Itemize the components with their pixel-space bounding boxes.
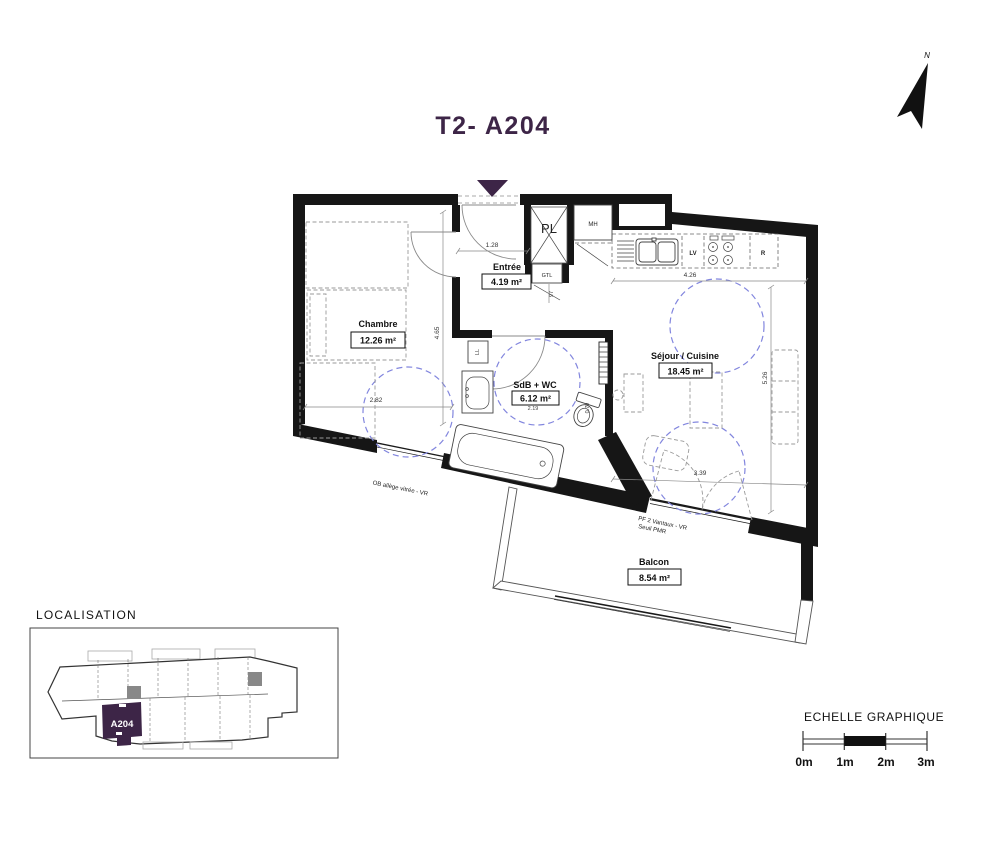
localisation-section: LOCALISATION A204	[30, 608, 338, 758]
washer-spot: LL	[468, 341, 488, 363]
scale-label-0m: 0m	[795, 755, 812, 769]
dim-chambre-depth: 4.65	[434, 326, 441, 339]
dim-sdb: 2.19	[528, 406, 539, 412]
pl-label: PL	[541, 221, 557, 236]
room-label-sdb: SdB + WC 6.12 m²	[512, 380, 559, 405]
localisation-heading: LOCALISATION	[36, 608, 137, 622]
scale-label-3m: 3m	[917, 755, 934, 769]
gtl-box: GTL	[532, 264, 562, 300]
area-chambre: 12.26 m²	[360, 336, 396, 346]
closet-pl: PL	[531, 207, 567, 263]
scale-bar-section: ECHELLE GRAPHIQUE 0m 1m 2m 3m	[795, 710, 944, 769]
area-sejour: 18.45 m²	[667, 367, 703, 377]
dim-wc: 0.79	[585, 403, 591, 414]
dim-kitchen-width: 4.26	[684, 272, 697, 279]
bathtub	[448, 424, 565, 489]
fridge-label: R	[761, 251, 766, 257]
kitchen-counter: LV R	[612, 234, 778, 268]
scale-heading: ECHELLE GRAPHIQUE	[804, 710, 944, 724]
bay-door-right-arc	[702, 471, 739, 510]
svg-text:Séjour / Cuisine: Séjour / Cuisine	[651, 351, 719, 361]
dim-bay-width: 3.39	[694, 470, 707, 477]
chambre-furniture	[300, 222, 408, 438]
armchair-outline	[641, 434, 690, 472]
sink-drainer	[617, 241, 634, 261]
washer-label: LL	[475, 349, 481, 355]
scale-label-2m: 2m	[877, 755, 894, 769]
page-title: T2- A204	[435, 112, 550, 140]
dim-entree-width: 1.28	[486, 242, 499, 249]
towel-radiator	[599, 342, 608, 384]
room-label-entree: Entrée 4.19 m²	[482, 262, 531, 289]
washbasin	[462, 371, 493, 413]
unit-a204-label: A204	[111, 719, 134, 730]
entrance-marker-triangle	[477, 180, 508, 197]
cooktop	[709, 236, 735, 265]
sejour-window-door	[650, 499, 752, 524]
svg-text:Balcon: Balcon	[639, 557, 669, 567]
balcony-glass-rail	[555, 596, 731, 628]
north-arrow: N	[897, 51, 930, 129]
wardrobe-outline	[306, 222, 408, 288]
floor-plan-drawing: T2- A204 N	[0, 0, 1000, 857]
gtl-label: GTL	[542, 273, 553, 279]
north-label: N	[924, 51, 930, 60]
table-outline	[690, 372, 722, 428]
sofa-outline	[772, 350, 798, 444]
dim-passage: 97	[549, 291, 555, 297]
chambre-door-arc	[411, 232, 456, 277]
kitchen-sink	[636, 238, 678, 265]
room-label-sejour: Séjour / Cuisine 18.45 m²	[651, 351, 719, 378]
room-label-balcon: Balcon 8.54 m²	[628, 557, 681, 585]
dim-sejour-depth: 5.26	[762, 371, 769, 384]
chambre-window-label: OB allège vitrée - VR	[372, 480, 429, 497]
svg-text:Chambre: Chambre	[358, 319, 397, 329]
floor-plan-page: T2- A204 N	[0, 0, 1000, 857]
north-arrow-icon	[897, 63, 928, 129]
cabinet-mh: MH	[574, 205, 612, 266]
dishwasher-label: LV	[689, 251, 696, 257]
scale-label-1m: 1m	[836, 755, 853, 769]
svg-text:SdB + WC: SdB + WC	[513, 380, 557, 390]
svg-text:Entrée: Entrée	[493, 262, 521, 272]
dim-chambre-width: 2.82	[370, 397, 383, 404]
mh-label: MH	[588, 222, 597, 228]
bed-pillow	[310, 294, 326, 356]
area-entree: 4.19 m²	[491, 277, 522, 287]
bay-door-left-arc	[664, 450, 703, 510]
scale-bar	[803, 731, 927, 751]
chair-outline	[624, 374, 643, 412]
area-balcon: 8.54 m²	[639, 573, 670, 583]
room-label-chambre: Chambre 12.26 m²	[351, 319, 405, 348]
area-sdb: 6.12 m²	[520, 394, 551, 404]
